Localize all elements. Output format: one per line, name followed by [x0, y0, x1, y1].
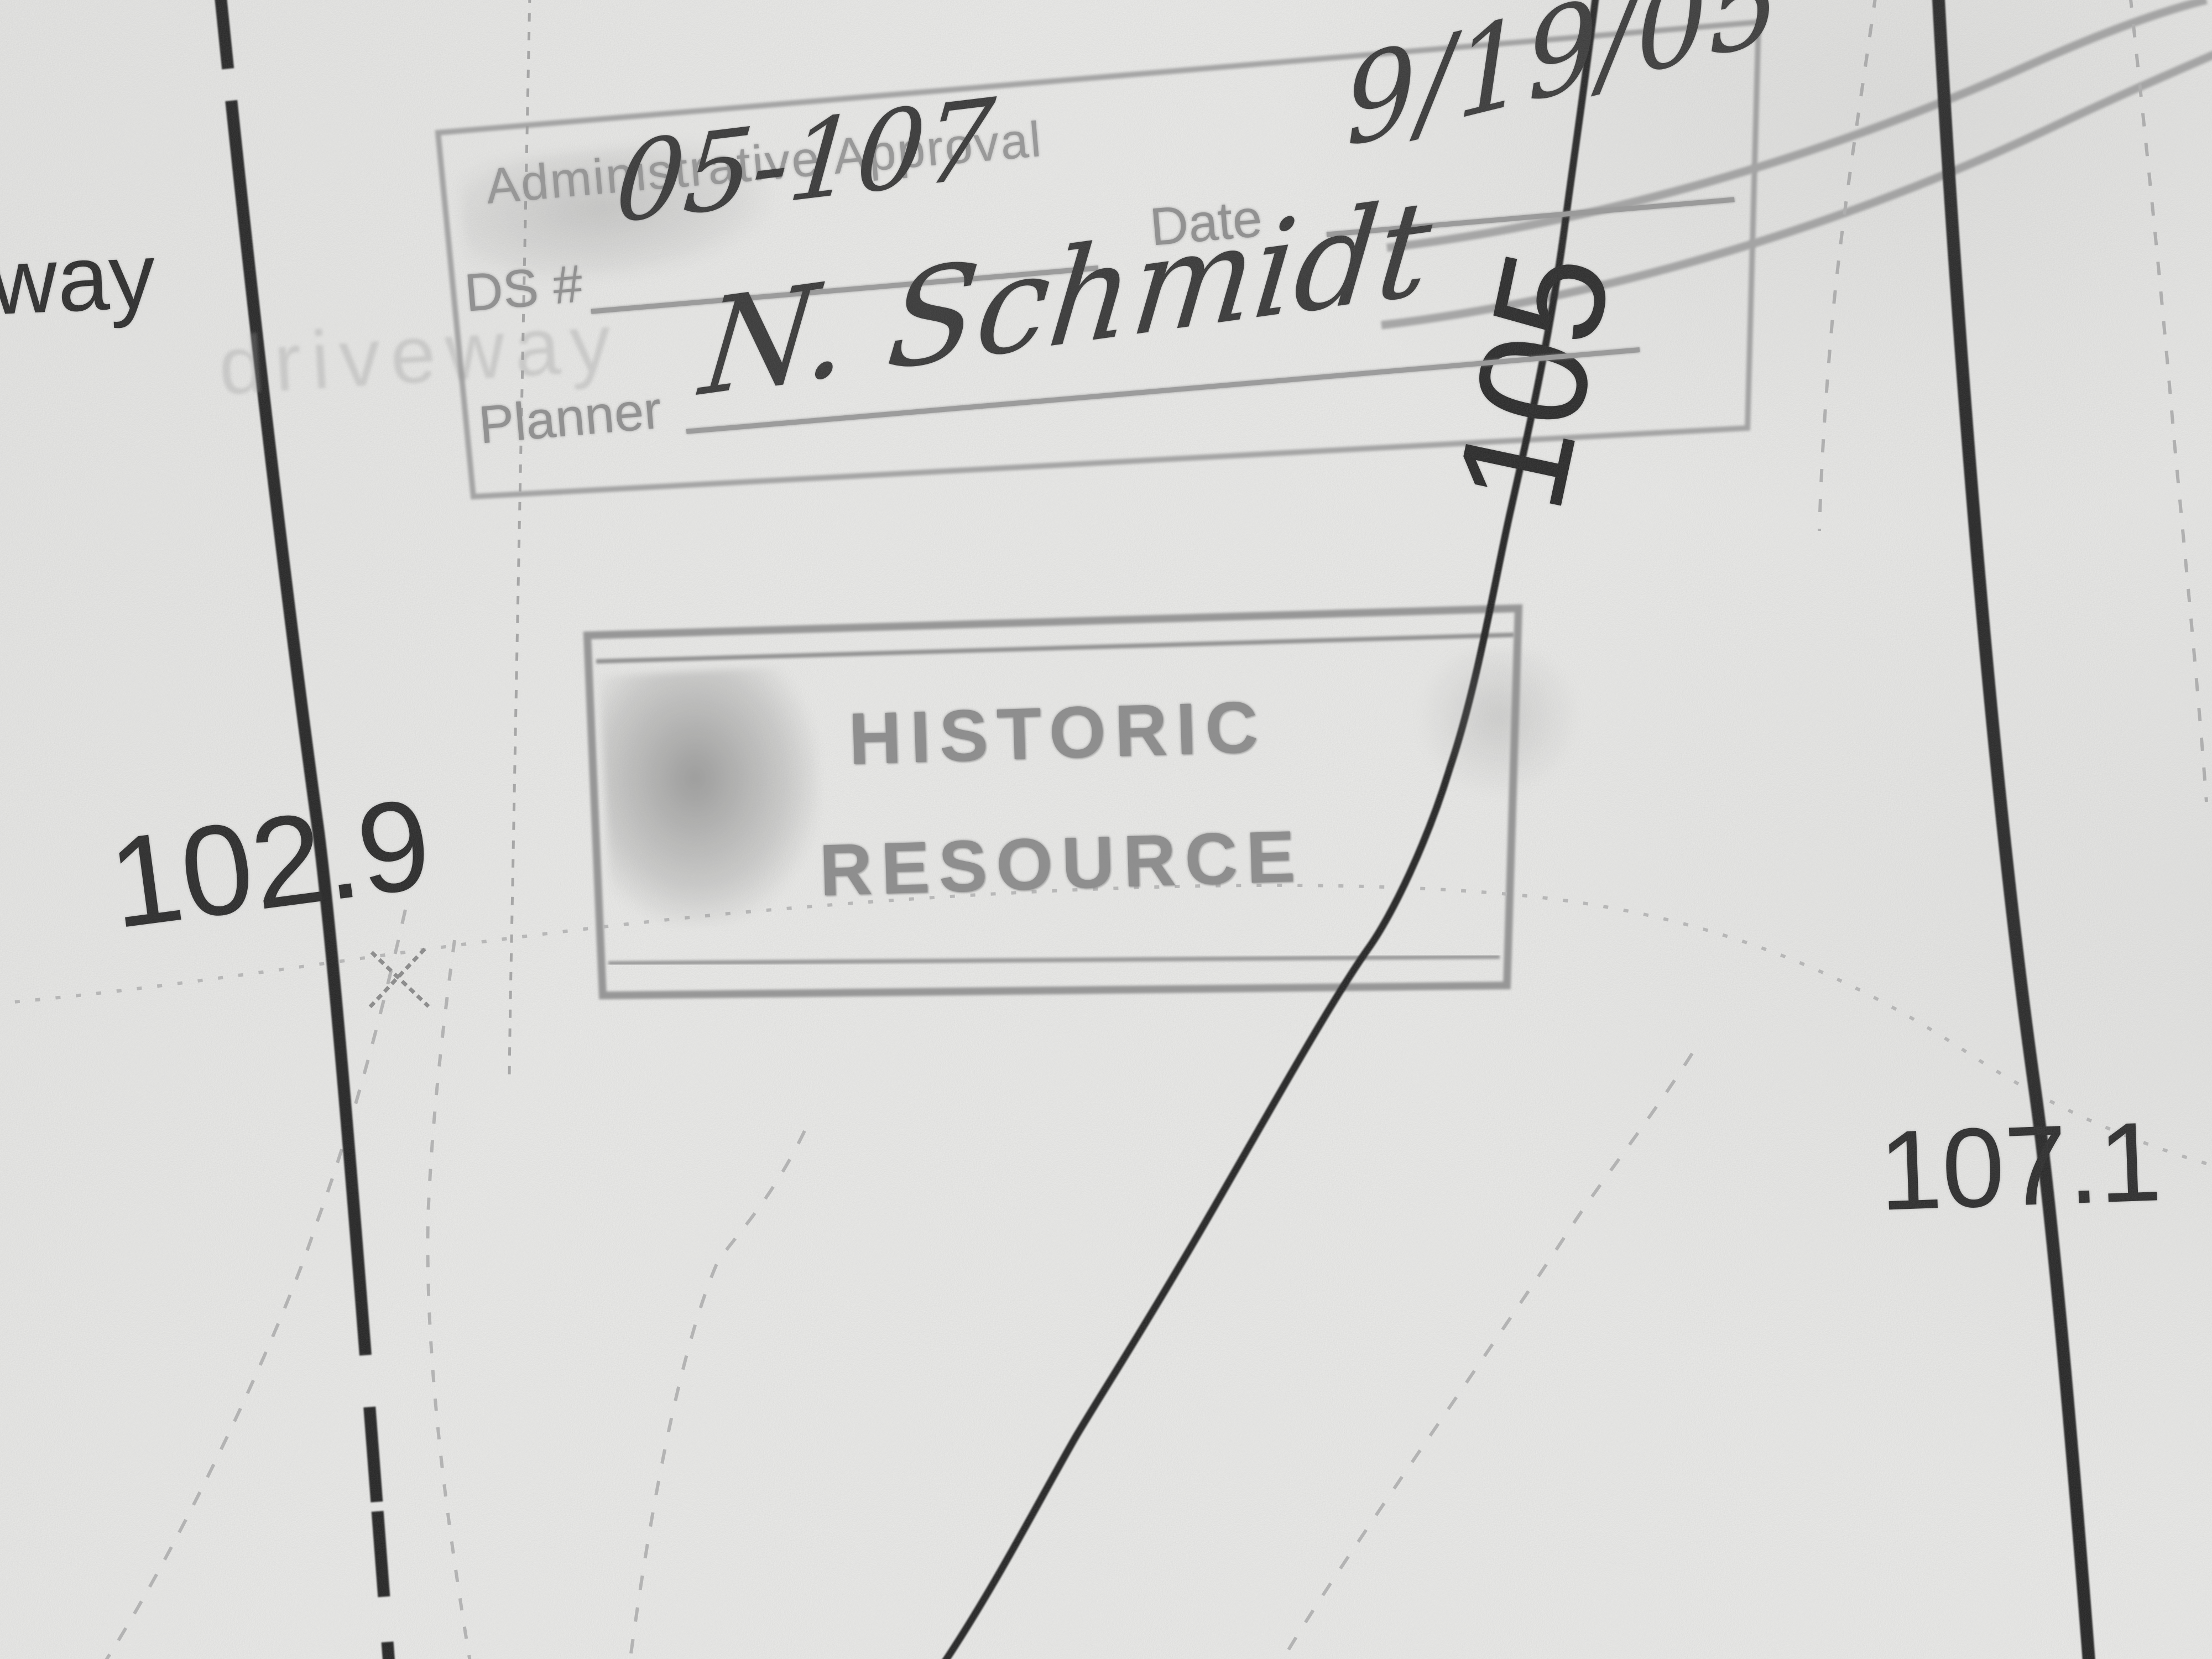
historic-resource-stamp: HISTORIC RESOURCE [600, 615, 1520, 997]
site-plan-scan: driveway way 102.9 105 107.1 Administrat… [0, 0, 2212, 1659]
spot-elevation-label-right: 107.1 [1877, 1097, 2163, 1237]
historic-stamp-line2: RESOURCE [606, 808, 1517, 919]
street-name-label: way [0, 222, 158, 336]
dashed-line-c [630, 1131, 805, 1659]
spot-elevation-x-marker [369, 949, 429, 1008]
historic-stamp-line1: HISTORIC [602, 677, 1514, 788]
dashed-line-right-inner [1819, 0, 1876, 531]
date-handwritten: 9/19/05 [1343, 0, 1782, 174]
dashed-line-right-edge [2130, 0, 2206, 802]
case-number-label: DS # [462, 253, 585, 324]
planner-label: Planner [476, 380, 664, 456]
dashed-line-d [1283, 1053, 1692, 1659]
dashed-line-b [427, 940, 470, 1659]
boundary-line-right [1938, 0, 2089, 1659]
